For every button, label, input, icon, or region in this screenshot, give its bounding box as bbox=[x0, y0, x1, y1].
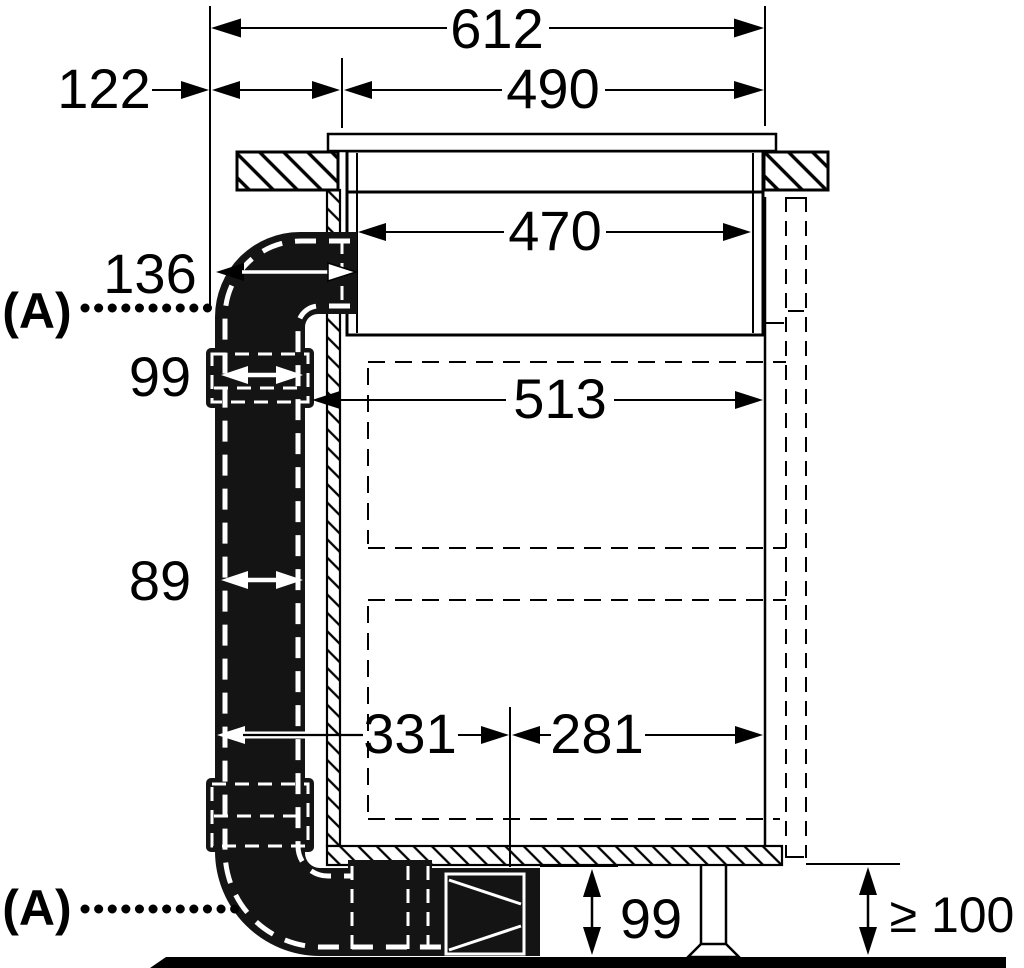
worktop-right-section bbox=[764, 152, 828, 190]
floor bbox=[150, 957, 1006, 968]
accessory-marker-top-label: (A) bbox=[2, 283, 71, 339]
installation-diagram-page: 612 122 490 470 136 bbox=[0, 0, 1024, 968]
dim-duct-run-left-label: 331 bbox=[363, 702, 456, 765]
hob-glass-top bbox=[328, 134, 776, 151]
worktop-left-section bbox=[237, 152, 338, 190]
dim-cabinet-clearance-width-label: 513 bbox=[513, 367, 606, 430]
dim-appliance-inner-width-label: 470 bbox=[508, 199, 601, 262]
dim-duct-connector-width-label: 99 bbox=[129, 345, 191, 408]
duct-clamp-horizontal bbox=[348, 860, 432, 956]
accessory-marker-bottom-label: (A) bbox=[2, 880, 71, 936]
dim-min-plinth-height-label: ≥ 100 bbox=[890, 887, 1015, 943]
dim-total-width-label: 612 bbox=[450, 0, 543, 60]
dim-cutout-width-label: 490 bbox=[506, 57, 599, 120]
dim-plinth-duct-height-label: 99 bbox=[620, 887, 682, 950]
dim-left-offset-label: 122 bbox=[57, 57, 150, 120]
installation-diagram: 612 122 490 470 136 bbox=[0, 0, 1024, 968]
dim-duct-run-right-label: 281 bbox=[550, 702, 643, 765]
dim-duct-elbow-depth-label: 136 bbox=[103, 242, 196, 305]
dim-duct-width-label: 89 bbox=[129, 549, 191, 612]
